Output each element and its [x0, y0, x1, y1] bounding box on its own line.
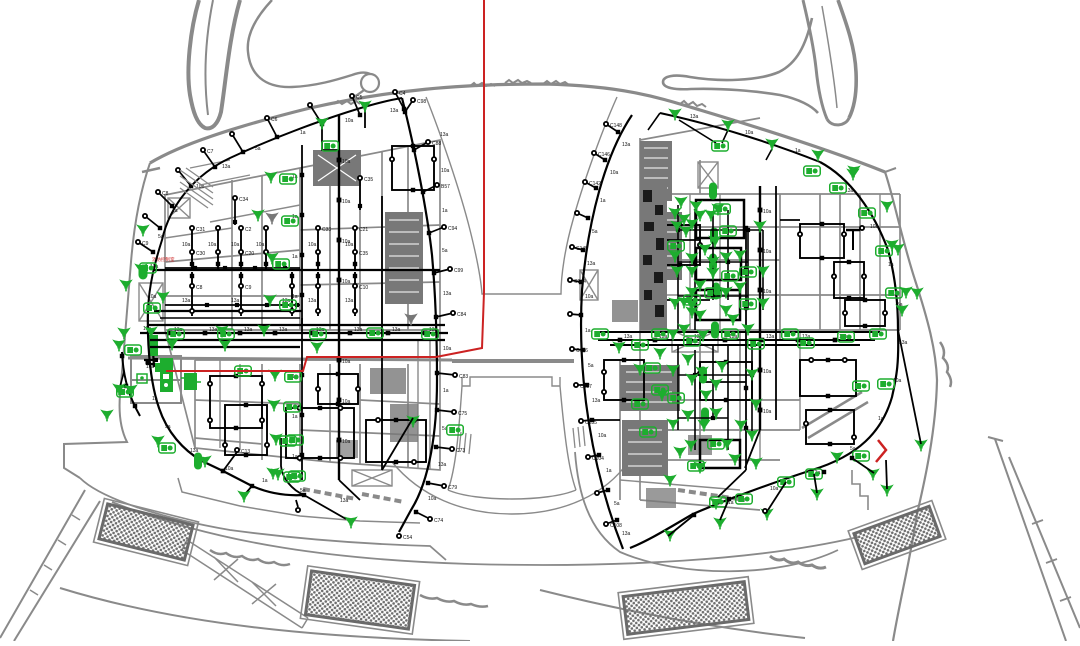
svg-text:10a: 10a [342, 279, 351, 285]
svg-text:10a: 10a [208, 242, 217, 248]
svg-text:C9: C9 [245, 285, 252, 291]
svg-text:10a: 10a [342, 359, 351, 365]
svg-text:10a: 10a [441, 168, 450, 174]
svg-text:5a: 5a [592, 229, 598, 235]
svg-text:13a: 13a [624, 334, 633, 340]
svg-text:1a: 1a [585, 328, 591, 334]
svg-text:C137: C137 [580, 384, 592, 390]
svg-text:C148: C148 [610, 123, 622, 129]
svg-text:C21: C21 [359, 227, 368, 233]
svg-text:10a: 10a [428, 496, 437, 502]
svg-text:10a: 10a [763, 369, 772, 375]
svg-text:10a: 10a [256, 242, 265, 248]
svg-text:13a: 13a [182, 298, 191, 304]
svg-text:10a: 10a [342, 159, 351, 165]
svg-text:13a: 13a [390, 108, 399, 114]
svg-text:C136: C136 [576, 348, 588, 354]
svg-text:10a: 10a [763, 289, 772, 295]
svg-text:C8: C8 [196, 285, 203, 291]
svg-text:10a: 10a [763, 209, 772, 215]
svg-text:1a: 1a [262, 478, 268, 484]
svg-text:C10: C10 [359, 285, 368, 291]
svg-text:10a: 10a [763, 409, 772, 415]
svg-text:C6: C6 [271, 117, 278, 123]
svg-text:C94: C94 [448, 226, 457, 232]
svg-text:10a: 10a [870, 224, 879, 230]
svg-text:1a: 1a [606, 468, 612, 474]
svg-text:13a: 13a [392, 327, 401, 333]
svg-text:C142: C142 [589, 181, 601, 187]
svg-text:C35: C35 [359, 251, 368, 257]
svg-text:1a: 1a [878, 416, 884, 422]
svg-text:1a: 1a [888, 262, 894, 268]
svg-text:13a: 13a [345, 298, 354, 304]
svg-text:10a: 10a [763, 249, 772, 255]
svg-text:1a: 1a [292, 254, 298, 260]
svg-text:C104: C104 [592, 456, 604, 462]
svg-text:13a: 13a [690, 114, 699, 120]
svg-text:13a: 13a [766, 334, 775, 340]
svg-text:10a: 10a [770, 486, 779, 492]
svg-text:10a: 10a [345, 242, 354, 248]
svg-text:C33: C33 [322, 227, 331, 233]
svg-text:13a: 13a [190, 448, 199, 454]
svg-text:C145: C145 [576, 246, 588, 252]
svg-text:1a: 1a [292, 414, 298, 420]
svg-text:10a: 10a [231, 242, 240, 248]
svg-text:10a: 10a [148, 294, 157, 300]
svg-text:1a: 1a [795, 148, 801, 154]
svg-text:5a: 5a [588, 363, 594, 369]
svg-text:C34: C34 [239, 197, 248, 203]
svg-text:13a: 13a [354, 327, 363, 333]
svg-text:C98: C98 [417, 99, 426, 105]
svg-text:10a: 10a [342, 439, 351, 445]
svg-text:13a: 13a [592, 398, 601, 404]
svg-text:10a: 10a [585, 294, 594, 300]
svg-text:5a: 5a [255, 146, 261, 152]
svg-text:13a: 13a [308, 298, 317, 304]
svg-text:C73: C73 [456, 448, 465, 454]
svg-text:C31: C31 [196, 227, 205, 233]
svg-text:13a: 13a [438, 462, 447, 468]
svg-text:10a: 10a [308, 242, 317, 248]
svg-text:13a: 13a [209, 327, 218, 333]
svg-text:5a: 5a [300, 488, 306, 494]
svg-text:C54: C54 [403, 535, 412, 541]
svg-text:C146: C146 [598, 152, 610, 158]
svg-text:5a: 5a [442, 248, 448, 254]
svg-text:13a: 13a [802, 334, 811, 340]
svg-text:C9: C9 [142, 241, 149, 247]
svg-text:C108: C108 [610, 523, 622, 529]
svg-text:C84: C84 [457, 312, 466, 318]
svg-text:10a: 10a [182, 242, 191, 248]
svg-text:10a: 10a [342, 199, 351, 205]
svg-text:C75: C75 [458, 411, 467, 417]
svg-text:13a: 13a [279, 327, 288, 333]
svg-text:C4: C4 [399, 91, 406, 97]
svg-text:13a: 13a [587, 261, 596, 267]
svg-text:13a: 13a [622, 142, 631, 148]
svg-text:13a: 13a [440, 132, 449, 138]
svg-text:1a: 1a [300, 130, 306, 136]
svg-text:C5: C5 [356, 95, 363, 101]
svg-text:10a: 10a [745, 130, 754, 136]
svg-text:5a: 5a [165, 424, 171, 430]
svg-text:10a: 10a [146, 364, 155, 370]
svg-text:C79: C79 [448, 485, 457, 491]
svg-text:1a: 1a [152, 396, 158, 402]
svg-text:C35: C35 [364, 177, 373, 183]
svg-text:10a: 10a [443, 346, 452, 352]
svg-text:1a: 1a [443, 388, 449, 394]
svg-text:10a: 10a [610, 170, 619, 176]
svg-text:C2: C2 [245, 227, 252, 233]
svg-text:10a: 10a [345, 118, 354, 124]
svg-text:C7: C7 [207, 149, 214, 155]
svg-text:5a: 5a [158, 234, 164, 240]
svg-text:1a: 1a [172, 208, 178, 214]
svg-text:C8: C8 [162, 191, 169, 197]
svg-text:13a: 13a [622, 531, 631, 537]
svg-text:10a: 10a [225, 466, 234, 472]
svg-text:5a: 5a [614, 501, 620, 507]
svg-text:13a: 13a [222, 164, 231, 170]
svg-text:C20: C20 [245, 251, 254, 257]
svg-text:13a: 13a [244, 327, 253, 333]
svg-text:C30: C30 [196, 251, 205, 257]
svg-text:C74: C74 [434, 518, 443, 524]
svg-text:1a: 1a [600, 198, 606, 204]
svg-text:1a: 1a [442, 208, 448, 214]
svg-text:C99: C99 [454, 268, 463, 274]
svg-text:C144: C144 [574, 279, 586, 285]
svg-text:B57: B57 [441, 184, 450, 190]
svg-text:13a: 13a [443, 291, 452, 297]
svg-text:10a: 10a [598, 433, 607, 439]
svg-text:13a: 13a [340, 498, 349, 504]
svg-text:C83: C83 [459, 374, 468, 380]
